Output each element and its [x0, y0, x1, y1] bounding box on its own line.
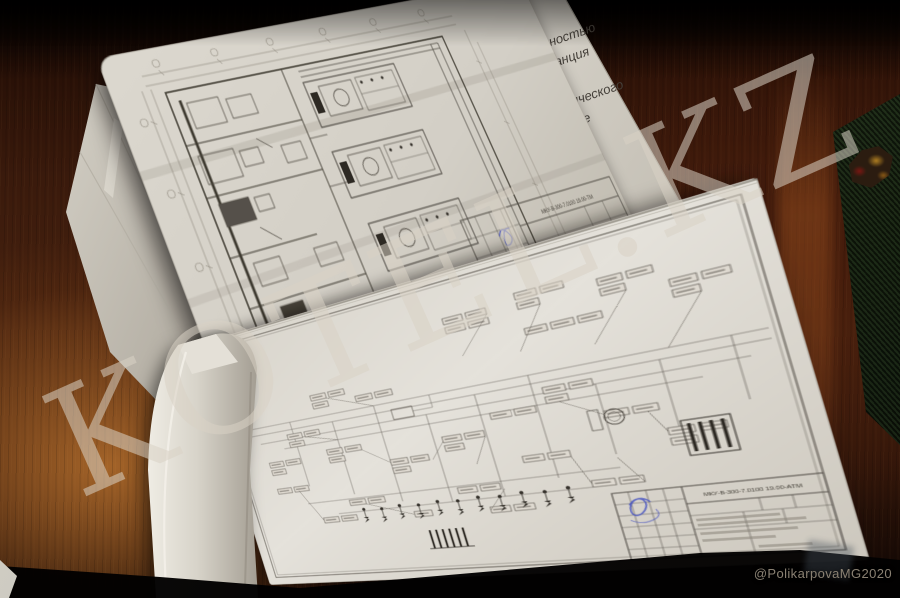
- photo-credit: @PolikarpovaMG2020: [754, 566, 892, 581]
- rolled-page-layer: [0, 0, 900, 598]
- photo-blueprints-on-table: щностью танция нического ние: [0, 0, 900, 598]
